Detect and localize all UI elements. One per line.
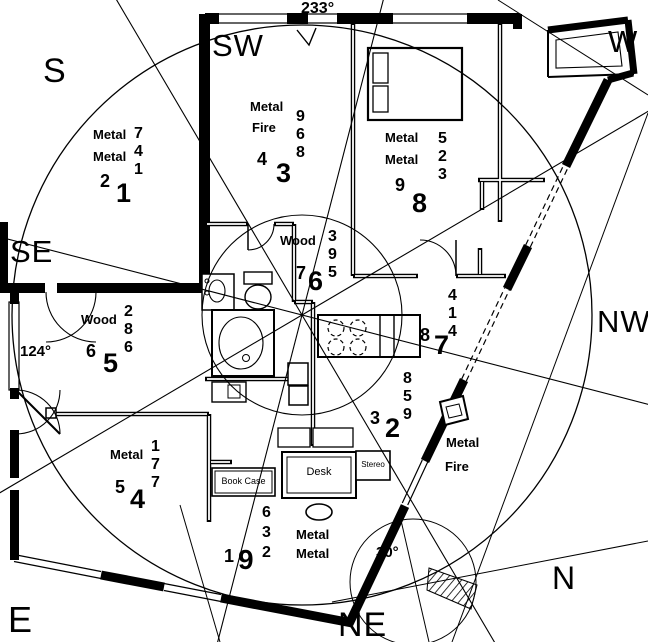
- sector-west-element-1: Metal: [385, 131, 418, 144]
- sector-south-element-1: Metal: [93, 128, 126, 141]
- desk-label: Desk: [282, 467, 356, 478]
- sector-southwest-period-star: 3: [276, 160, 291, 187]
- sector-center-element-1: Wood: [280, 234, 316, 247]
- sector-north-wall-element-1: Metal: [446, 436, 479, 449]
- wall-object: [440, 396, 468, 425]
- sector-east-center-period-star: 2: [385, 415, 400, 442]
- sector-east-period-star: 4: [130, 486, 145, 513]
- sector-south-element-2: Metal: [93, 150, 126, 163]
- angle-facing-233: 233°: [301, 1, 334, 17]
- sector-northwest-left-star: 8: [420, 326, 430, 344]
- sector-center-period-star: 6: [308, 268, 323, 295]
- desk-hutch: [313, 428, 353, 447]
- sector-southwest-element-1: Metal: [250, 100, 283, 113]
- sector-southeast-element-1: Wood: [81, 313, 117, 326]
- sector-east-left-star: 5: [115, 478, 125, 496]
- sector-east-element-1: Metal: [110, 448, 143, 461]
- bookcase-label: Book Case: [212, 477, 275, 486]
- sector-east-star-column: 177: [151, 438, 160, 492]
- compass-label-s: S: [43, 54, 67, 88]
- sector-east-center-star-column: 859: [403, 370, 412, 424]
- compass-label-w: W: [608, 26, 638, 57]
- desk-hutch: [278, 428, 310, 447]
- sector-south-left-star: 2: [100, 172, 110, 190]
- sector-center-left-star: 7: [296, 264, 306, 282]
- compass-label-sw: SW: [212, 30, 264, 61]
- compass-label-nw: NW: [597, 306, 648, 337]
- sector-southeast-star-column: 286: [124, 303, 133, 357]
- sector-southeast-period-star: 5: [103, 350, 118, 377]
- sector-west-star-column: 523: [438, 130, 447, 184]
- sector-southwest-element-2: Fire: [252, 121, 276, 134]
- sector-north-wall-element-2: Fire: [445, 460, 469, 473]
- sector-southwest-left-star: 4: [257, 150, 267, 168]
- sector-northwest-star-column: 414: [448, 287, 457, 341]
- chair: [306, 504, 332, 520]
- sector-north-element-1: Metal: [296, 528, 329, 541]
- north-needle: [427, 568, 477, 609]
- sector-north-element-2: Metal: [296, 547, 329, 560]
- sector-north-left-star: 1: [224, 547, 234, 565]
- sector-south-star-column: 741: [134, 125, 143, 179]
- stereo-label: Stereo: [356, 461, 390, 469]
- sector-center-star-column: 395: [328, 228, 337, 282]
- sector-north-star-column: 632: [262, 503, 271, 563]
- angle-bottom-30: 30°: [376, 545, 399, 560]
- pillow: [373, 53, 388, 83]
- compass-label-ne: NE: [338, 608, 387, 642]
- sector-west-element-2: Metal: [385, 153, 418, 166]
- sector-east-center-left-star: 3: [370, 409, 380, 427]
- sector-west-left-star: 9: [395, 176, 405, 194]
- compass-label-n: N: [552, 562, 576, 594]
- sector-southeast-left-star: 6: [86, 342, 96, 360]
- compass-label-e: E: [8, 602, 33, 638]
- floor-plan-diagram: S SW W SE NW E NE N 233° 124° 30° Metal …: [0, 0, 648, 642]
- sector-south-period-star: 1: [116, 180, 131, 207]
- sector-northwest-period-star: 7: [434, 332, 449, 359]
- facing-arrow: [297, 28, 316, 45]
- pillow: [373, 86, 388, 112]
- compass-label-se: SE: [10, 236, 53, 267]
- sector-north-period-star: 9: [238, 546, 254, 574]
- angle-side-124: 124°: [20, 344, 51, 359]
- sector-southwest-star-column: 968: [296, 108, 305, 162]
- sector-west-period-star: 8: [412, 190, 427, 217]
